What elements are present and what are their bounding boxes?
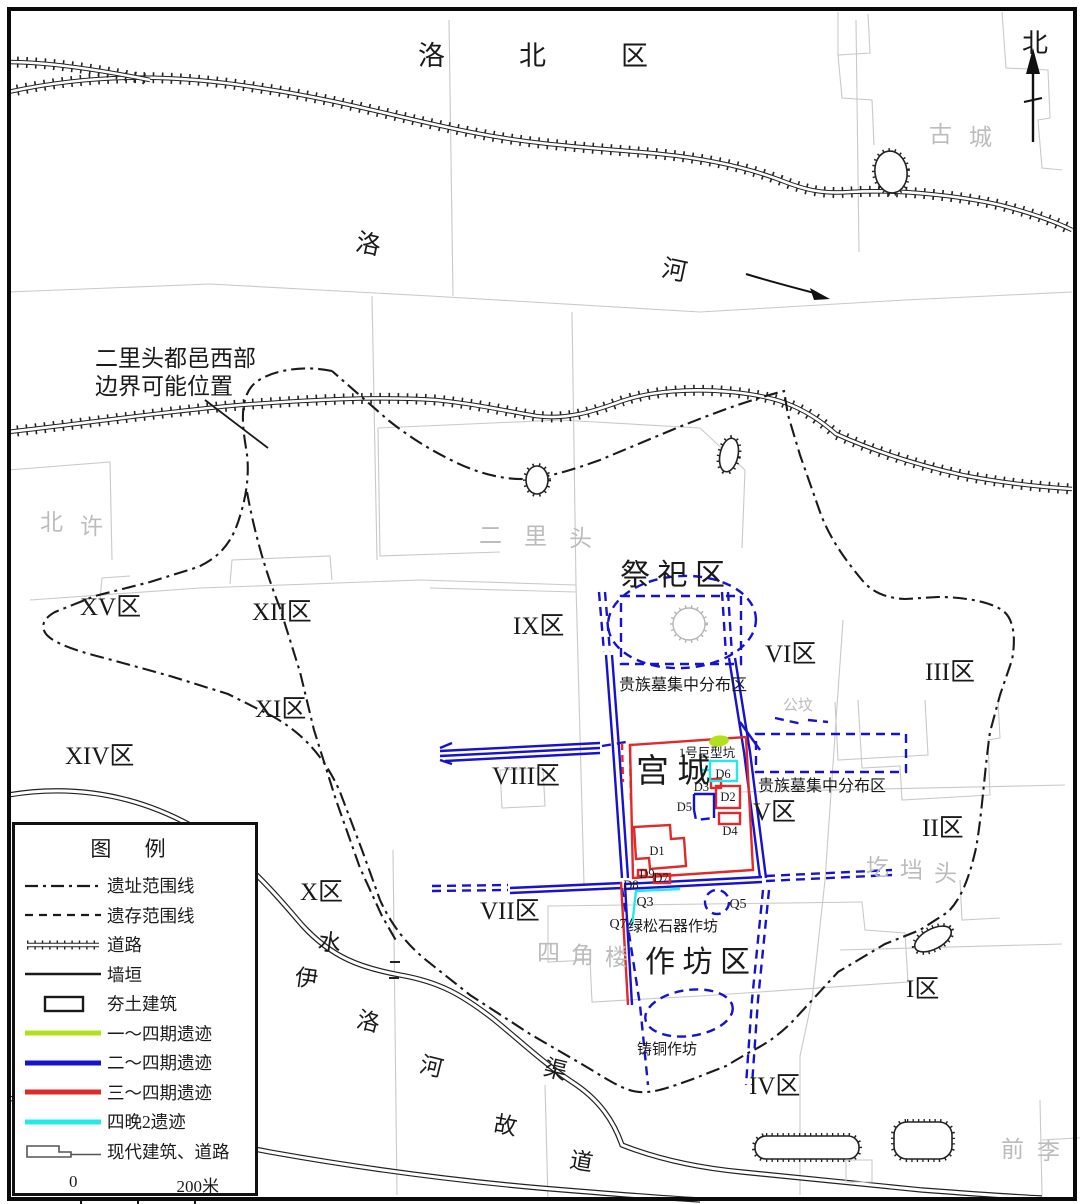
district-xii-label: XII区	[252, 599, 312, 626]
district-xi-label: XI区	[255, 696, 306, 723]
phase1-4-swatch-icon	[23, 1028, 103, 1038]
legend-item-label: 现代建筑、道路	[107, 1139, 230, 1164]
legend-item-label: 四晚2遗迹	[107, 1109, 186, 1134]
zone-jisi-label: 祭 祀 区	[620, 559, 725, 592]
site-d7-label: D7	[653, 871, 668, 885]
site-q5-label: Q5	[729, 897, 746, 912]
village-gedangtou-char: 圪	[866, 855, 889, 880]
site-q7-label: Q7	[609, 917, 626, 932]
site-d4-label: D4	[722, 824, 738, 838]
district-ii-label: II区	[922, 815, 964, 842]
remains-boundary-layer	[432, 572, 906, 1085]
legend-item-road: 道路	[23, 930, 247, 960]
village-sijiaolou-char: 角	[571, 943, 594, 968]
site-q3-label: Q3	[636, 895, 653, 910]
site-d8-label: D8	[623, 878, 638, 892]
phase4-late2-swatch-icon	[23, 1117, 103, 1127]
village-qianli-char: 李	[1037, 1139, 1060, 1164]
luo-river-char: 洛	[353, 228, 383, 261]
village-qianli-char: 前	[1001, 1137, 1024, 1162]
river-flow-arrow	[746, 274, 830, 300]
site-d6-label: D6	[715, 767, 730, 781]
district-iv-label: IV区	[749, 1073, 800, 1100]
legend-item-rammed-earth: 夯土建筑	[23, 989, 247, 1019]
rammed-earth-swatch-icon	[23, 994, 103, 1014]
legend-item-label: 遗存范围线	[107, 903, 195, 928]
district-vii-label: VII区	[480, 898, 540, 925]
west-boundary-annotation-line1: 二里头都邑西部	[95, 346, 256, 371]
district-xv-label: XV区	[80, 594, 141, 621]
remains-boundary-swatch-icon	[23, 910, 103, 920]
village-beixu-char: 北	[40, 510, 63, 535]
district-iii-label: III区	[925, 659, 975, 686]
district-luobei-char: 北	[519, 41, 546, 71]
site-d9-label: D9	[639, 867, 654, 881]
village-gongfen-label: 公坟	[783, 697, 813, 714]
legend-item-label: 遗址范围线	[107, 873, 195, 898]
map-canvas: 洛 北 区 北 洛 河 二里头都邑西部 边界可能位置 古 城 北 许 二 里 头…	[0, 0, 1080, 1204]
channel-char: 洛	[354, 1007, 382, 1037]
village-sijiaolou-char: 楼	[605, 945, 628, 970]
village-sijiaolou-char: 四	[537, 940, 560, 965]
channel-char: 故	[492, 1111, 519, 1140]
village-beixu-char: 许	[80, 514, 103, 539]
scale-end-label: 200米	[177, 1172, 220, 1197]
building-d5-group	[694, 794, 714, 820]
district-ix-label: IX区	[513, 613, 564, 640]
village-erlitou-char: 头	[569, 526, 592, 551]
site-boundary-swatch-icon	[23, 881, 103, 891]
turquoise-workshop-label: 绿松石器作坊	[628, 918, 718, 935]
district-xiv-label: XIV区	[65, 743, 134, 770]
north-arrow	[1024, 48, 1042, 142]
zone-zuofang-label: 作 坊 区	[645, 946, 750, 979]
legend-item-remains-boundary: 遗存范围线	[23, 901, 247, 931]
district-vi-label: VI区	[765, 641, 816, 668]
noble-tombs-east-rect	[756, 734, 906, 772]
noble-tombs-north-label: 贵族墓集中分布区	[619, 676, 747, 694]
bronze-workshop-ellipse	[642, 984, 736, 1042]
luo-river-char: 河	[659, 254, 689, 287]
district-viii-label: VIII区	[492, 763, 560, 790]
legend-item-label: 道路	[107, 932, 142, 957]
legend-item-label: 一～四期遗迹	[107, 1021, 212, 1046]
road-layer	[8, 62, 1072, 489]
building-d5	[694, 794, 714, 818]
village-gedangtou-char: 头	[934, 861, 957, 886]
site-d5-label: D5	[677, 800, 692, 814]
phase2-4-swatch-icon	[23, 1058, 103, 1068]
legend-item-phase4-late2: 四晚2遗迹	[23, 1107, 247, 1137]
village-gucheng-char: 古	[929, 122, 952, 147]
legend-item-phase1-4: 一～四期遗迹	[23, 1019, 247, 1049]
building-d4	[719, 813, 740, 824]
village-erlitou-char: 二	[479, 523, 502, 548]
scale-zero-label: 0	[69, 1172, 78, 1197]
giant-pit-label: 1号巨型坑	[679, 745, 736, 760]
channel-char: 伊	[293, 965, 319, 993]
district-luobei-char: 区	[621, 41, 648, 71]
site-d3-label: D3	[694, 780, 709, 794]
village-erlitou-char: 里	[524, 524, 547, 549]
west-boundary-annotation-line2: 边界可能位置	[95, 374, 233, 399]
phase3-4-swatch-icon	[23, 1087, 103, 1097]
site-d1-label: D1	[649, 844, 664, 858]
legend-item-label: 夯土建筑	[107, 991, 177, 1016]
legend-item-label: 墙垣	[107, 962, 142, 987]
pond-layer	[526, 149, 955, 1182]
legend-item-phase3-4: 三～四期遗迹	[23, 1078, 247, 1108]
legend-item-modern: 现代建筑、道路	[23, 1137, 247, 1167]
wall-swatch-icon	[23, 969, 103, 979]
scale-bar-numbers: 0 200米	[69, 1172, 219, 1197]
village-gedangtou-char: 垱	[900, 858, 923, 883]
legend-item-site-boundary: 遗址范围线	[23, 871, 247, 901]
district-luobei-char: 洛	[418, 41, 445, 71]
legend-item-wall: 墙垣	[23, 960, 247, 990]
site-d2-label: D2	[720, 790, 735, 804]
scale-bar	[73, 1197, 303, 1204]
noble-tombs-east-label: 贵族墓集中分布区	[758, 777, 886, 795]
channel-char: 河	[417, 1052, 445, 1082]
bronze-workshop-label: 铸铜作坊	[637, 1041, 697, 1058]
road-swatch-icon	[23, 938, 103, 952]
q5-circle	[705, 890, 729, 914]
channel-char: 水	[316, 929, 342, 957]
legend-title: 图 例	[23, 833, 247, 863]
legend-item-label: 二～四期遗迹	[107, 1050, 212, 1075]
legend-box: 图 例 遗址范围线 遗存范围线 道路 墙垣 夯土建筑 一～四期遗迹 二～四期遗迹…	[12, 822, 258, 1196]
district-v-label: V区	[753, 799, 796, 826]
district-x-label: X区	[300, 879, 343, 906]
modern-buildings-swatch-icon	[23, 1141, 103, 1161]
legend-item-label: 三～四期遗迹	[107, 1080, 212, 1105]
channel-char: 道	[568, 1147, 595, 1176]
compass-north-label: 北	[1022, 29, 1048, 58]
district-i-label: I区	[906, 976, 939, 1003]
village-gucheng-char: 城	[969, 125, 992, 150]
legend-item-phase2-4: 二～四期遗迹	[23, 1048, 247, 1078]
